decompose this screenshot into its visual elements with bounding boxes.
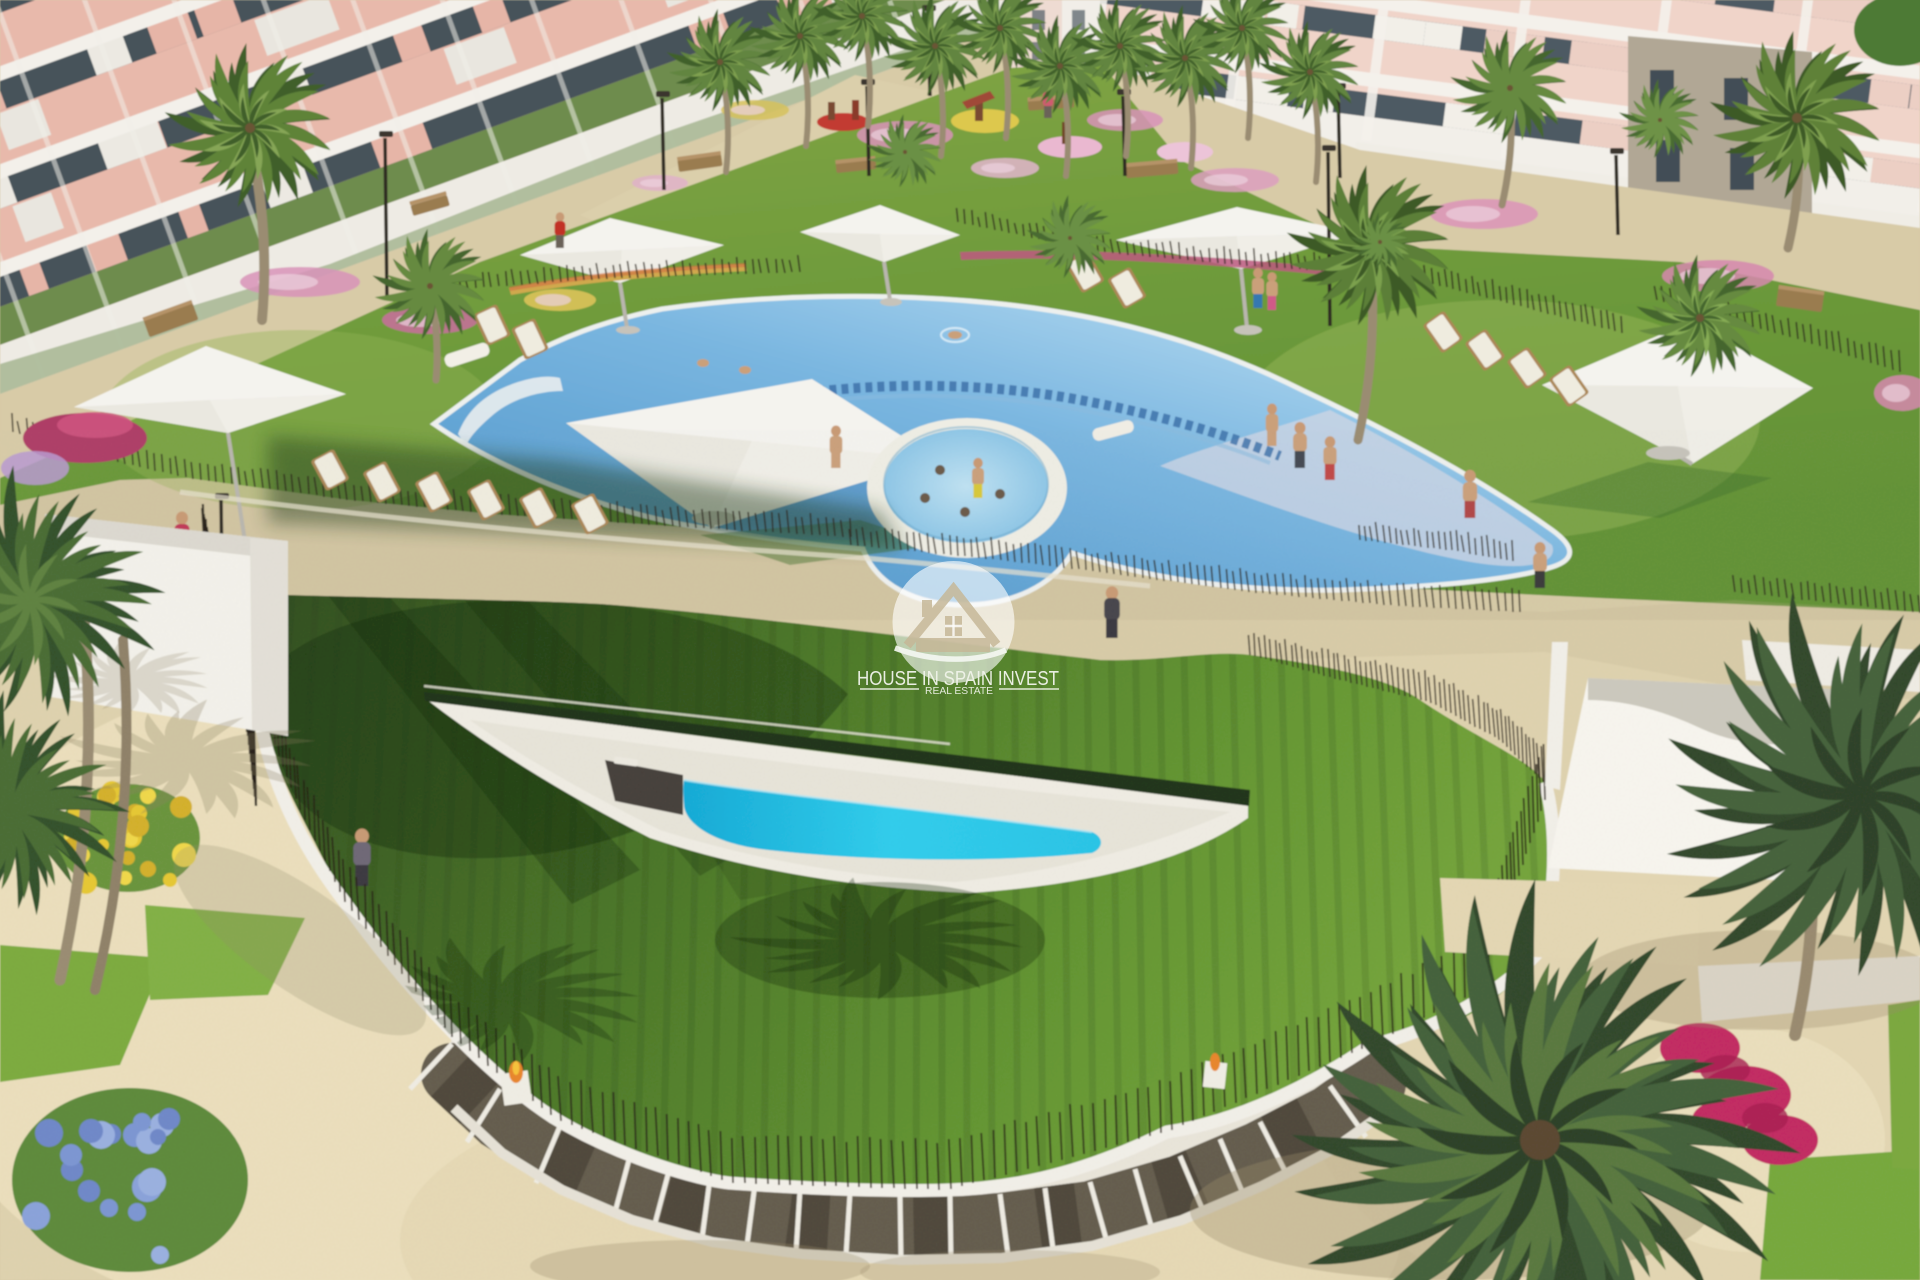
svg-text:REAL ESTATE: REAL ESTATE <box>925 685 993 697</box>
